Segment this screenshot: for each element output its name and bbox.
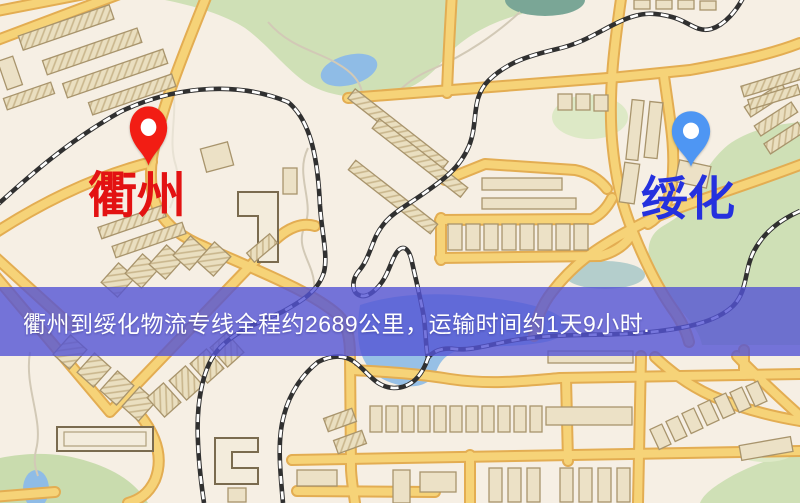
red-location-pin-icon[interactable] <box>128 105 169 167</box>
route-info-text: 衢州到绥化物流专线全程约2689公里，运输时间约1天9小时. <box>23 305 650 339</box>
map-viewport[interactable]: 衢州 绥化 衢州到绥化物流专线全程约2689公里，运输时间约1天9小时. <box>0 0 800 503</box>
map-artwork <box>0 0 800 503</box>
destination-city-label: 绥化 <box>641 175 735 222</box>
blue-location-pin-icon[interactable] <box>670 110 712 168</box>
origin-city-label: 衢州 <box>88 172 186 221</box>
route-info-banner: 衢州到绥化物流专线全程约2689公里，运输时间约1天9小时. <box>0 287 800 356</box>
